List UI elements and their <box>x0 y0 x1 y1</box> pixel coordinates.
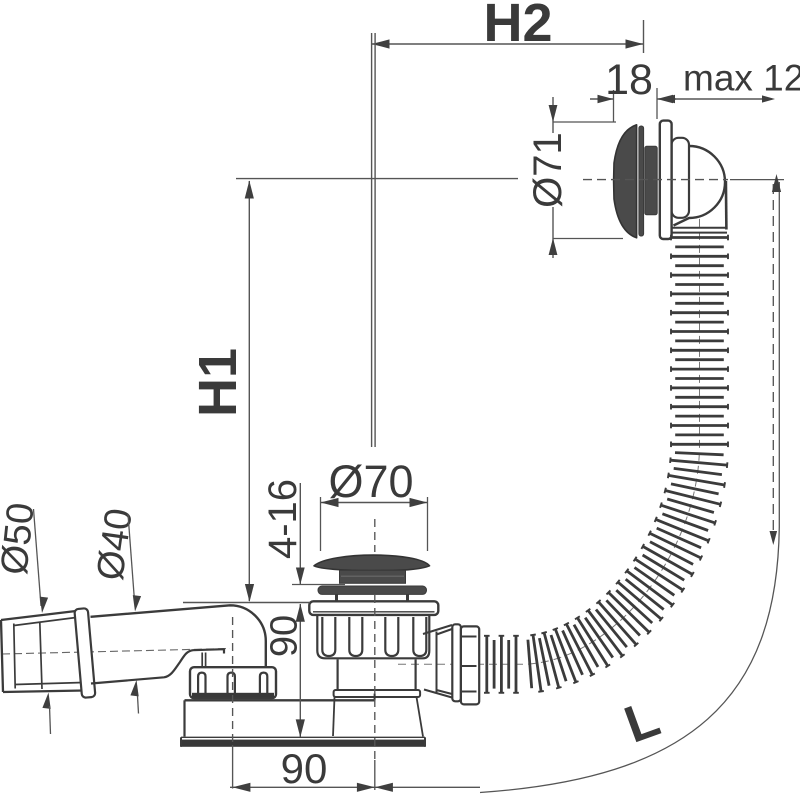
svg-text:Ø70: Ø70 <box>328 456 413 507</box>
svg-text:90: 90 <box>281 745 328 792</box>
svg-text:Ø71: Ø71 <box>526 132 570 208</box>
svg-text:4-16: 4-16 <box>261 479 305 559</box>
svg-text:H1: H1 <box>188 348 248 417</box>
svg-text:18: 18 <box>605 56 653 104</box>
svg-text:H2: H2 <box>483 0 552 53</box>
svg-text:90: 90 <box>264 615 306 657</box>
svg-text:max 120: max 120 <box>683 58 800 99</box>
